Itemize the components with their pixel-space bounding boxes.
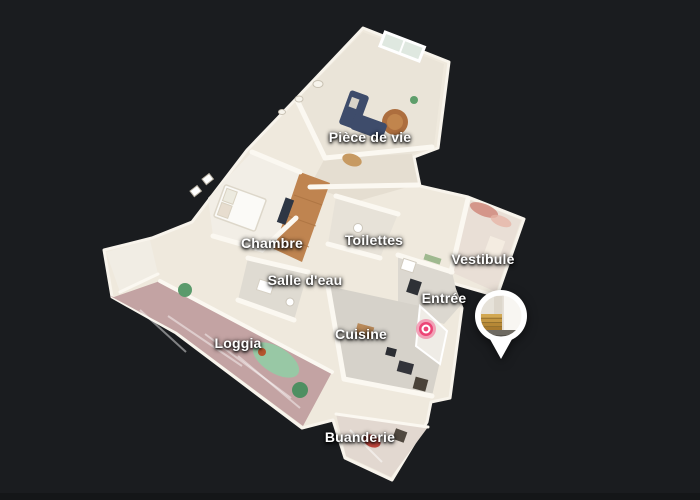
wall-art: [190, 174, 213, 197]
plant: [292, 382, 308, 398]
plant: [410, 96, 418, 104]
dollhouse-3d-model[interactable]: [0, 0, 700, 500]
photo-pin[interactable]: [475, 290, 527, 359]
plant: [178, 283, 192, 297]
dollhouse-viewer[interactable]: Pièce de vie Chambre Toilettes Vestibule…: [0, 0, 700, 500]
toilet: [354, 224, 363, 233]
sink: [286, 298, 294, 306]
position-marker[interactable]: [416, 319, 436, 339]
